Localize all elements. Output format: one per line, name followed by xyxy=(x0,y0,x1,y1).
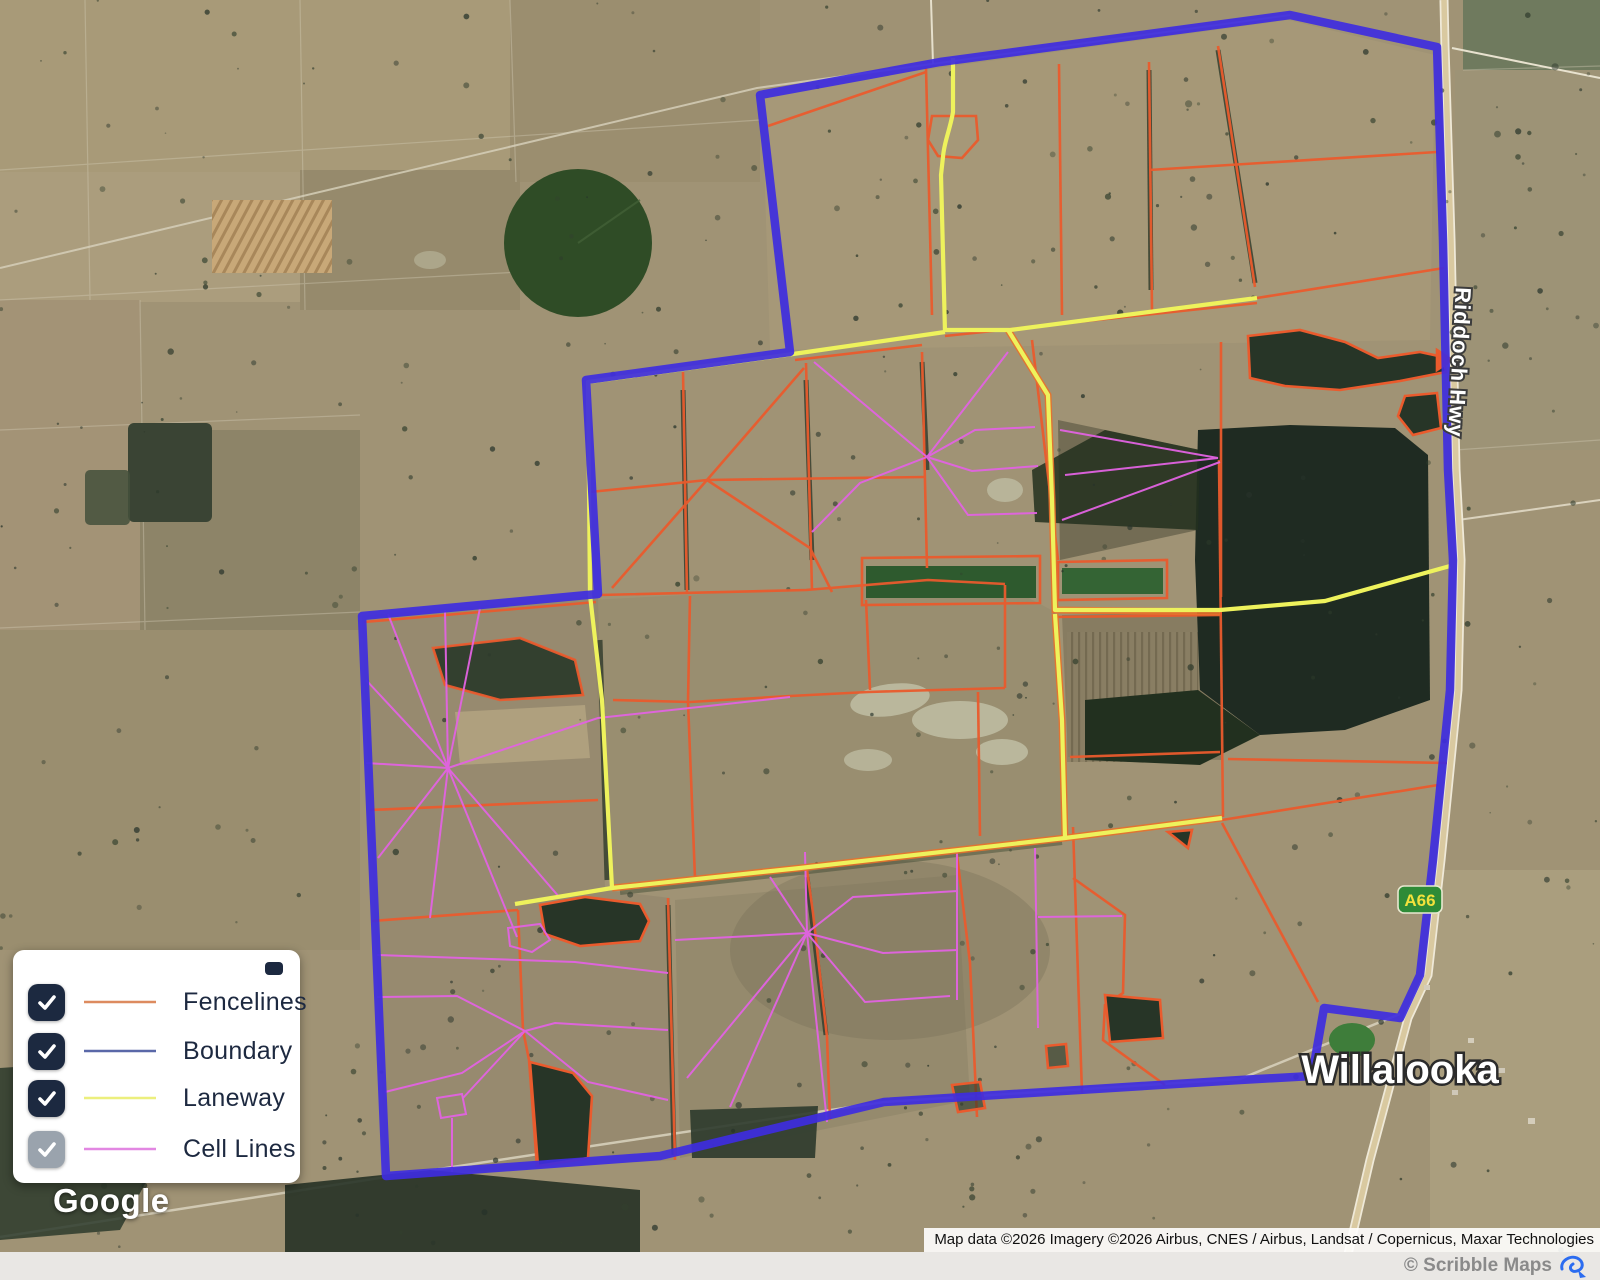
checkbox-laneway[interactable] xyxy=(28,1080,65,1117)
fencelines-swatch xyxy=(82,998,158,1006)
check-icon xyxy=(36,1040,58,1062)
svg-text:A66: A66 xyxy=(1404,891,1435,910)
legend-row-boundary[interactable]: Boundary xyxy=(28,1029,292,1073)
cell-lines-swatch xyxy=(82,1145,158,1153)
check-icon xyxy=(36,1138,58,1160)
boundary-swatch xyxy=(82,1047,158,1055)
legend-label-boundary: Boundary xyxy=(183,1037,292,1066)
legend-label-laneway: Laneway xyxy=(183,1084,285,1113)
map-attribution: Map data ©2026 Imagery ©2026 Airbus, CNE… xyxy=(924,1228,1600,1252)
checkbox-cell-lines[interactable] xyxy=(28,1131,65,1168)
checkbox-fencelines[interactable] xyxy=(28,984,65,1021)
check-icon xyxy=(36,991,58,1013)
scribble-maps-credit[interactable]: © Scribble Maps xyxy=(1404,1255,1552,1277)
legend-row-fencelines[interactable]: Fencelines xyxy=(28,980,307,1024)
checkbox-boundary[interactable] xyxy=(28,1033,65,1070)
map-page: Riddoch Hwy A66 Willalooka Fencelines xyxy=(0,0,1600,1280)
legend-minimize-button[interactable] xyxy=(265,962,283,975)
laneway-swatch xyxy=(82,1094,158,1102)
plowed-field xyxy=(212,200,332,273)
google-logo[interactable]: Google xyxy=(53,1182,170,1220)
legend-label-fencelines: Fencelines xyxy=(183,988,307,1017)
legend-row-laneway[interactable]: Laneway xyxy=(28,1076,285,1120)
legend-label-cell-lines: Cell Lines xyxy=(183,1135,296,1164)
scribble-maps-logo-icon[interactable] xyxy=(1558,1253,1588,1279)
legend-row-cell-lines[interactable]: Cell Lines xyxy=(28,1127,296,1171)
bottom-bar: © Scribble Maps xyxy=(0,1252,1600,1280)
check-icon xyxy=(36,1087,58,1109)
town-label: Willalooka xyxy=(1301,1048,1499,1092)
route-badge: A66 xyxy=(1398,886,1442,913)
legend-panel: Fencelines Boundary Laneway xyxy=(13,950,300,1183)
